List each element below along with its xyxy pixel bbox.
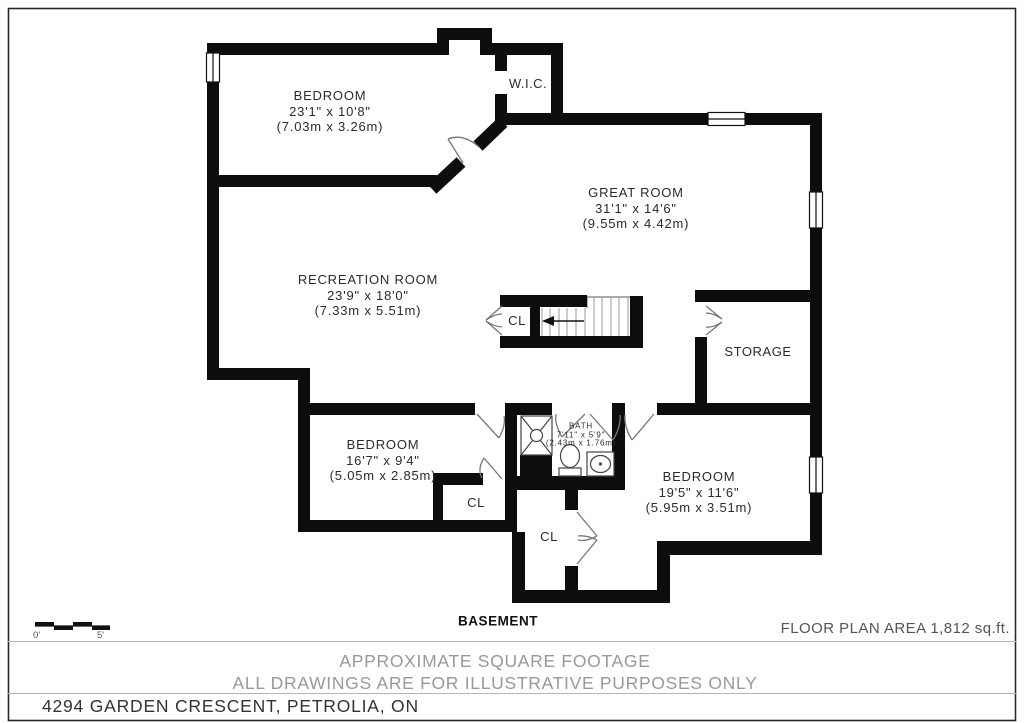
double-door-closet-stairs bbox=[486, 306, 502, 335]
scale-bar bbox=[35, 622, 110, 630]
room-dim-imperial: 31'1" x 14'6" bbox=[583, 200, 690, 216]
window-right-greatroom bbox=[810, 192, 823, 228]
room-label-great-room: GREAT ROOM 31'1" x 14'6" (9.55m x 4.42m) bbox=[583, 185, 690, 232]
scale-start-label: 0' bbox=[33, 630, 40, 641]
room-dim-imperial: 16'7" x 9'4" bbox=[330, 452, 437, 468]
room-dim-imperial: 23'1" x 10'8" bbox=[277, 103, 384, 119]
scale-end-label: 5' bbox=[97, 630, 104, 641]
sink-icon bbox=[587, 452, 614, 476]
double-door-closet-hall bbox=[577, 512, 597, 564]
room-name: CL bbox=[467, 497, 485, 509]
room-dim-metric: (5.95m x 3.51m) bbox=[646, 500, 753, 516]
door-bedroom-bl bbox=[477, 414, 504, 438]
room-dim-metric: (7.33m x 5.51m) bbox=[298, 303, 438, 319]
room-label-wic: W.I.C. bbox=[509, 78, 547, 90]
room-label-bath: BATH 7'11" x 5'9" (2.43m x 1.76m) bbox=[546, 422, 616, 448]
room-name: BEDROOM bbox=[646, 469, 753, 485]
window-top bbox=[708, 113, 745, 126]
room-label-recreation-room: RECREATION ROOM 23'9" x 18'0" (7.33m x 5… bbox=[298, 272, 438, 319]
room-dim-metric: (7.03m x 3.26m) bbox=[277, 119, 384, 135]
room-name: CL bbox=[540, 531, 558, 543]
room-dim-metric: (5.05m x 2.85m) bbox=[330, 468, 437, 484]
room-name: RECREATION ROOM bbox=[298, 272, 438, 288]
address-text: 4294 GARDEN CRESCENT, PETROLIA, ON bbox=[42, 696, 419, 717]
door-closet-bl bbox=[480, 458, 502, 479]
room-dim-metric: (9.55m x 4.42m) bbox=[583, 216, 690, 232]
floor-plan-area-note: FLOOR PLAN AREA 1,812 sq.ft. bbox=[781, 620, 1010, 637]
disclaimer-line-1: APPROXIMATE SQUARE FOOTAGE bbox=[0, 650, 990, 672]
stair-direction-arrow bbox=[542, 316, 584, 326]
room-label-bedroom-bl: BEDROOM 16'7" x 9'4" (5.05m x 2.85m) bbox=[330, 437, 437, 484]
room-label-storage: STORAGE bbox=[724, 346, 791, 358]
level-label: BASEMENT bbox=[458, 613, 538, 629]
disclaimer-line-2: ALL DRAWINGS ARE FOR ILLUSTRATIVE PURPOS… bbox=[0, 672, 990, 694]
room-label-closet-hall: CL bbox=[540, 531, 558, 543]
window-right-bedroom bbox=[810, 457, 823, 493]
window-left bbox=[207, 53, 220, 82]
room-name: CL bbox=[508, 315, 526, 327]
double-door-storage bbox=[706, 306, 722, 335]
floor-plan-page: BEDROOM 23'1" x 10'8" (7.03m x 3.26m) W.… bbox=[0, 0, 1024, 723]
room-label-closet-bl: CL bbox=[467, 497, 485, 509]
room-name: BEDROOM bbox=[277, 88, 384, 104]
room-dim-imperial: 19'5" x 11'6" bbox=[646, 484, 753, 500]
room-dim-metric: (2.43m x 1.76m) bbox=[546, 439, 616, 448]
room-label-bedroom-br: BEDROOM 19'5" x 11'6" (5.95m x 3.51m) bbox=[646, 469, 753, 516]
room-label-closet-stairs: CL bbox=[508, 315, 526, 327]
room-name: STORAGE bbox=[724, 346, 791, 358]
toilet-icon bbox=[559, 445, 581, 477]
room-name: W.I.C. bbox=[509, 78, 547, 90]
room-name: BEDROOM bbox=[330, 437, 437, 453]
room-dim-imperial: 23'9" x 18'0" bbox=[298, 287, 438, 303]
diagonal-walls bbox=[432, 122, 503, 189]
room-label-bedroom-tl: BEDROOM 23'1" x 10'8" (7.03m x 3.26m) bbox=[277, 88, 384, 135]
room-name: GREAT ROOM bbox=[583, 185, 690, 201]
disclaimer-text: APPROXIMATE SQUARE FOOTAGE ALL DRAWINGS … bbox=[0, 650, 990, 694]
